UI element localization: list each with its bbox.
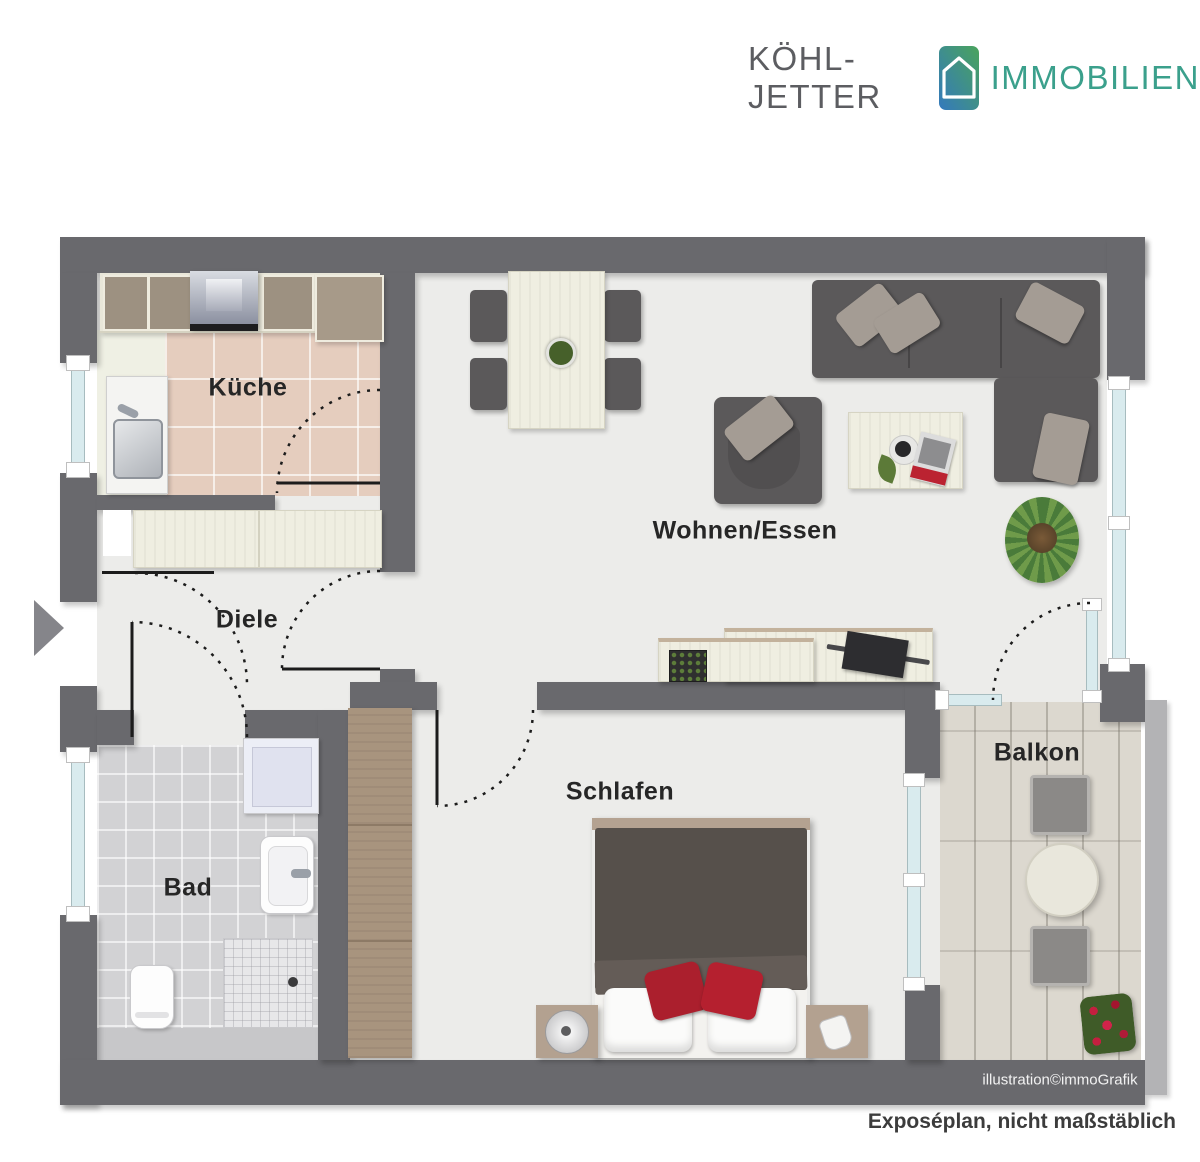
window-cap xyxy=(1082,598,1102,611)
sideboard-low xyxy=(658,638,814,682)
window-cap xyxy=(66,747,90,763)
niche-gap xyxy=(103,510,131,556)
wardrobe-divider xyxy=(348,940,412,942)
kitchen-floor xyxy=(165,330,380,496)
company-name-secondary: IMMOBILIEN xyxy=(991,59,1200,97)
kitchen-cabinet xyxy=(262,275,314,331)
room-label-wohnen-essen: Wohnen/Essen xyxy=(653,517,838,546)
telephone xyxy=(818,1013,855,1052)
bed xyxy=(592,818,810,1058)
kitchen-faucet xyxy=(116,403,139,420)
window-cap xyxy=(66,906,90,922)
kitchen-sink-unit xyxy=(106,376,168,494)
kitchen-sink-basin xyxy=(113,419,163,479)
kitchen-tall-cabinet xyxy=(315,275,384,342)
dining-chair xyxy=(470,290,507,342)
sideboard-divider xyxy=(258,511,260,567)
window-cap xyxy=(66,355,90,371)
tv-screen xyxy=(842,631,909,678)
wall-bad-north-1 xyxy=(97,710,134,745)
flower-box xyxy=(1079,992,1137,1055)
window-cap xyxy=(935,690,949,710)
room-label-bad: Bad xyxy=(164,874,213,903)
window-cap xyxy=(1082,690,1102,703)
wall-left-3 xyxy=(60,686,97,752)
balcony-door-glass xyxy=(1086,602,1098,700)
bathroom-floor-strip xyxy=(97,1028,318,1060)
wall-kitchen-east xyxy=(380,273,415,572)
wardrobe xyxy=(348,708,412,1058)
coffee-table xyxy=(848,412,963,489)
dining-chair xyxy=(604,358,641,410)
table-bowl xyxy=(546,338,576,368)
window-cap xyxy=(903,977,925,991)
opening-line xyxy=(102,571,214,574)
sink-faucet xyxy=(291,869,311,878)
logo: KÖHL-JETTER IMMOBILIEN xyxy=(748,40,1200,116)
window-cap xyxy=(66,462,90,478)
wall-kitchen-south xyxy=(97,495,275,510)
illustration-credit: illustration©immoGrafik xyxy=(982,1072,1137,1089)
kitchen-stove-hood xyxy=(190,271,258,329)
room-label-diele: Diele xyxy=(216,606,278,635)
nightstand-left xyxy=(536,1005,598,1058)
floorplan-canvas: KÖHL-JETTER IMMOBILIEN xyxy=(0,0,1200,1162)
toilet-seat-line xyxy=(135,1012,169,1018)
window-mullion xyxy=(903,873,925,887)
hood-vent xyxy=(206,279,242,311)
kitchen-cabinet xyxy=(148,275,194,331)
dining-table xyxy=(508,271,605,429)
window-cap xyxy=(1108,658,1130,672)
magazine xyxy=(910,431,957,486)
wardrobe-divider xyxy=(348,824,412,826)
coffee-cup xyxy=(895,441,911,457)
lamp-center xyxy=(561,1026,571,1036)
balcony-chair xyxy=(1030,926,1090,986)
disclaimer-text: Exposéplan, nicht maßstäblich xyxy=(868,1110,1176,1134)
window-kitchen xyxy=(71,360,85,475)
hallway-sideboard xyxy=(133,510,382,568)
shower-drain xyxy=(288,977,298,987)
house-icon xyxy=(939,46,979,110)
magazine-photo xyxy=(918,437,951,469)
window-cap xyxy=(903,773,925,787)
room-label-balkon: Balkon xyxy=(994,739,1080,768)
plant xyxy=(1005,497,1079,583)
toilet xyxy=(130,965,174,1029)
wall-pillar-balcony xyxy=(1100,664,1145,722)
company-name-primary: KÖHL-JETTER xyxy=(748,40,927,116)
dining-chair xyxy=(470,358,507,410)
window-balcony-side xyxy=(940,694,1002,706)
room-label-schlafen: Schlafen xyxy=(566,778,674,807)
window-cap xyxy=(1108,376,1130,390)
balcony-railing xyxy=(1145,700,1167,1095)
wall-schlafen-north-1 xyxy=(350,682,437,710)
plant-center xyxy=(1027,523,1057,553)
wall-right-top xyxy=(1107,237,1145,380)
stove-front xyxy=(190,324,258,331)
shower xyxy=(223,938,313,1028)
room-label-kueche: Küche xyxy=(209,374,288,403)
wall-schlafen-north-2 xyxy=(537,682,907,710)
kitchen-cabinet xyxy=(103,275,149,331)
window-mullion xyxy=(1108,516,1130,530)
balcony-chair xyxy=(1030,775,1090,835)
wall-left-2 xyxy=(60,473,97,602)
dining-chair xyxy=(604,290,641,342)
wall-top xyxy=(60,237,1145,273)
washing-machine xyxy=(243,738,319,814)
washing-machine-lid xyxy=(252,747,312,807)
balcony-table xyxy=(1025,843,1099,917)
wall-schlafen-east-2 xyxy=(905,985,940,1060)
plant-pot xyxy=(669,650,707,682)
wall-left-1 xyxy=(60,273,97,363)
nightstand-right xyxy=(806,1005,868,1058)
sofa-seam xyxy=(1000,298,1002,368)
wall-bad-east xyxy=(318,710,350,1060)
bathroom-sink xyxy=(260,836,314,914)
window-bathroom xyxy=(71,752,85,917)
entrance-arrow-icon xyxy=(34,600,64,656)
